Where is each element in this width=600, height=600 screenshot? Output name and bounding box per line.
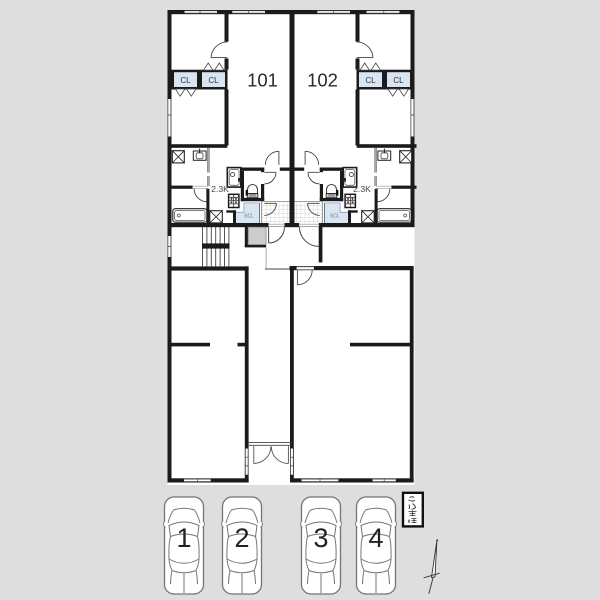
svg-text:CL: CL <box>208 76 219 85</box>
svg-text:SCL: SCL <box>330 214 340 220</box>
svg-text:4: 4 <box>368 523 383 553</box>
svg-text:2: 2 <box>234 523 249 553</box>
svg-text:SCL: SCL <box>244 214 254 220</box>
svg-text:CL: CL <box>365 76 376 85</box>
svg-text:CL: CL <box>180 76 191 85</box>
svg-text:101: 101 <box>247 70 278 91</box>
svg-text:3: 3 <box>313 523 328 553</box>
svg-text:1: 1 <box>176 523 191 553</box>
svg-text:2.3K: 2.3K <box>211 184 229 194</box>
svg-text:2.3K: 2.3K <box>353 184 371 194</box>
svg-text:CL: CL <box>393 76 404 85</box>
svg-text:102: 102 <box>307 70 338 91</box>
